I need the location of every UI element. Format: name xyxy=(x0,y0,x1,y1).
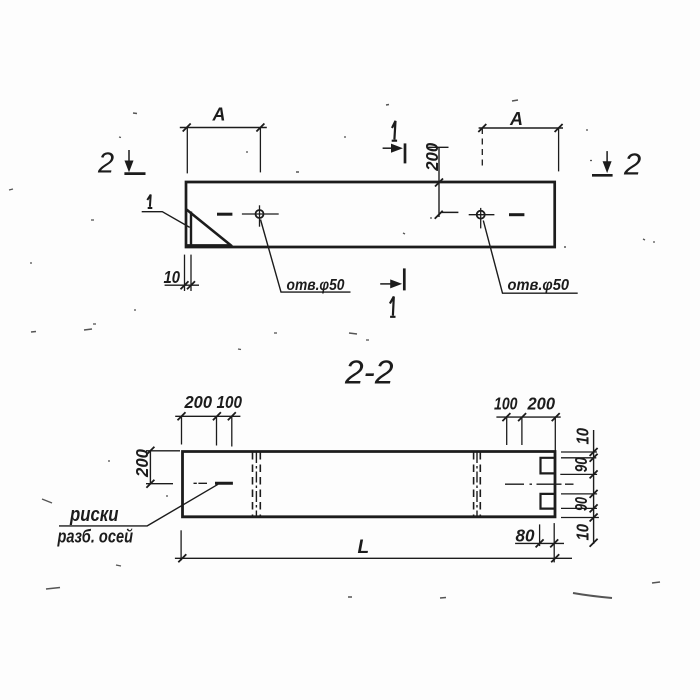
svg-text:10: 10 xyxy=(573,524,593,541)
svg-text:200: 200 xyxy=(527,394,556,414)
svg-text:A: A xyxy=(212,105,226,125)
svg-text:2-2: 2-2 xyxy=(344,354,394,391)
svg-text:2: 2 xyxy=(623,147,641,182)
svg-text:отв.φ50: отв.φ50 xyxy=(508,277,570,294)
svg-text:отв.φ50: отв.φ50 xyxy=(287,277,345,294)
svg-text:разб. осей: разб. осей xyxy=(57,527,133,547)
svg-text:100: 100 xyxy=(494,394,518,414)
svg-text:риски: риски xyxy=(69,504,118,526)
svg-text:100: 100 xyxy=(217,392,243,412)
svg-text:80: 80 xyxy=(516,526,535,546)
svg-text:A: A xyxy=(509,109,523,129)
svg-text:L: L xyxy=(358,537,370,558)
svg-text:200: 200 xyxy=(184,392,213,412)
svg-text:10: 10 xyxy=(164,267,181,287)
svg-text:90: 90 xyxy=(571,457,591,472)
svg-text:10: 10 xyxy=(573,428,593,445)
svg-text:2: 2 xyxy=(97,148,114,180)
svg-text:200: 200 xyxy=(422,143,442,172)
svg-text:200: 200 xyxy=(132,449,152,478)
svg-text:90: 90 xyxy=(571,497,591,511)
